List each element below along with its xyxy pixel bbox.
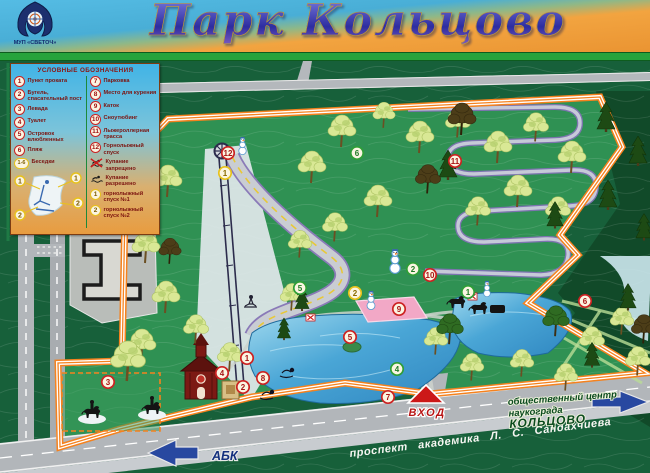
legend-item: 2Бугель, спасательный пост	[14, 89, 84, 103]
legend-item-label: Купание разрешено	[106, 174, 158, 188]
svg-text:12: 12	[224, 149, 233, 158]
legend-item-label: Горнолыжный спуск	[104, 142, 158, 156]
svg-text:6: 6	[583, 297, 588, 306]
noswim-icon	[90, 158, 103, 168]
legend-item: 1Пункт проката	[14, 76, 84, 87]
legend-item-label: горнолыжный спуск №1	[104, 189, 158, 203]
legend-marker-10: 10	[90, 114, 101, 125]
legend-marker-3: 3	[14, 104, 25, 115]
legend-marker-5: 5	[14, 129, 25, 140]
legend-item: Купание разрешено	[90, 174, 157, 188]
legend-title: УСЛОВНЫЕ ОБОЗНАЧЕНИЯ	[14, 67, 157, 74]
legend-item: 9Каток	[90, 101, 157, 112]
legend-item-label: Купание запрещено	[106, 158, 158, 172]
svg-text:1: 1	[245, 354, 250, 363]
legend-item: 5Островок влюбленных	[14, 129, 84, 143]
booth	[222, 381, 239, 399]
svg-text:10: 10	[426, 271, 435, 280]
ice-rink	[356, 297, 427, 322]
svg-text:5: 5	[348, 333, 353, 342]
slope-diagram: 1122	[14, 171, 84, 228]
legend-marker-9: 9	[90, 101, 101, 112]
svg-text:3: 3	[106, 378, 111, 387]
svg-text:2: 2	[241, 383, 246, 392]
legend-item: 3Левада	[14, 104, 84, 115]
svg-text:2: 2	[353, 289, 358, 298]
svg-text:7: 7	[386, 393, 391, 402]
header-divider	[0, 52, 650, 61]
legend-item: 11Лыжероллерная трасса	[90, 126, 157, 140]
legend-item-label: Пункт проката	[28, 76, 68, 84]
legend-column-right: 7Парковка8Место для курения9Каток10Сноут…	[87, 76, 157, 228]
legend-column-left: 1Пункт проката2Бугель, спасательный пост…	[14, 76, 87, 228]
abk-label: АБК	[211, 449, 239, 463]
legend-marker-12: 12	[90, 142, 101, 153]
legend-item-label: Пляж	[28, 145, 43, 153]
svg-text:4: 4	[395, 365, 400, 374]
svg-text:1: 1	[223, 169, 228, 178]
legend-item-label: Сноутюбинг	[104, 114, 138, 122]
park-map-poster: МУП «СВЕТОЧ» Парк Кольцово	[0, 0, 650, 473]
legend-marker-7: 7	[90, 76, 101, 87]
svg-text:2: 2	[411, 265, 416, 274]
legend-item-label: Левада	[28, 104, 48, 112]
legend-item: Купание запрещено	[90, 158, 157, 172]
svg-text:8: 8	[261, 374, 266, 383]
logo: МУП «СВЕТОЧ»	[3, 1, 67, 51]
legend-item-label: Туалет	[28, 117, 47, 125]
legend-item-label: горнолыжный спуск №2	[104, 205, 158, 219]
legend-item-label: Островок влюбленных	[28, 129, 85, 143]
legend-item-label: Место для курения	[104, 89, 157, 97]
svg-text:9: 9	[397, 305, 402, 314]
page-title: Парк Кольцово	[70, 0, 646, 52]
svg-text:1: 1	[18, 178, 22, 185]
entrance-label: ВХОД	[408, 407, 445, 419]
legend-item-label: Парковка	[104, 76, 130, 84]
svg-text:2: 2	[76, 200, 80, 207]
legend-marker-1-6: 1-6	[14, 158, 29, 169]
swim-icon	[90, 174, 103, 184]
legend-item-label: Бугель, спасательный пост	[28, 89, 85, 103]
legend-item: 12Горнолыжный спуск	[90, 142, 157, 156]
legend-item: 2горнолыжный спуск №2	[90, 205, 157, 219]
legend-item-label: Каток	[104, 101, 119, 109]
legend-item: 1горнолыжный спуск №1	[90, 189, 157, 203]
legend-item: 8Место для курения	[90, 89, 157, 100]
svg-text:2: 2	[18, 212, 22, 219]
legend-item: 1-6Беседки	[14, 158, 84, 169]
legend-item-label: Беседки	[32, 158, 55, 166]
legend-marker-11: 11	[90, 126, 101, 137]
header: МУП «СВЕТОЧ» Парк Кольцово	[0, 0, 650, 52]
legend-item-label: Лыжероллерная трасса	[104, 126, 158, 140]
svg-text:1: 1	[74, 175, 78, 182]
svg-text:6: 6	[355, 149, 360, 158]
legend-marker-2: 2	[90, 205, 101, 216]
svg-text:11: 11	[451, 157, 460, 166]
legend-marker-2: 2	[14, 89, 25, 100]
logo-caption: МУП «СВЕТОЧ»	[3, 41, 67, 47]
legend-item: 10Сноутюбинг	[90, 114, 157, 125]
legend-marker-1: 1	[90, 189, 101, 200]
hands-emblem-icon	[13, 1, 57, 41]
legend-marker-1: 1	[14, 76, 25, 87]
legend-marker-8: 8	[90, 89, 101, 100]
legend-item: 6Пляж	[14, 145, 84, 156]
legend-panel: УСЛОВНЫЕ ОБОЗНАЧЕНИЯ 1Пункт проката2Буге…	[10, 63, 160, 235]
legend-marker-6: 6	[14, 145, 25, 156]
legend-marker-4: 4	[14, 117, 25, 128]
svg-text:1: 1	[466, 288, 471, 297]
legend-item: 4Туалет	[14, 117, 84, 128]
svg-text:4: 4	[220, 369, 225, 378]
legend-item: 7Парковка	[90, 76, 157, 87]
svg-text:5: 5	[298, 284, 303, 293]
